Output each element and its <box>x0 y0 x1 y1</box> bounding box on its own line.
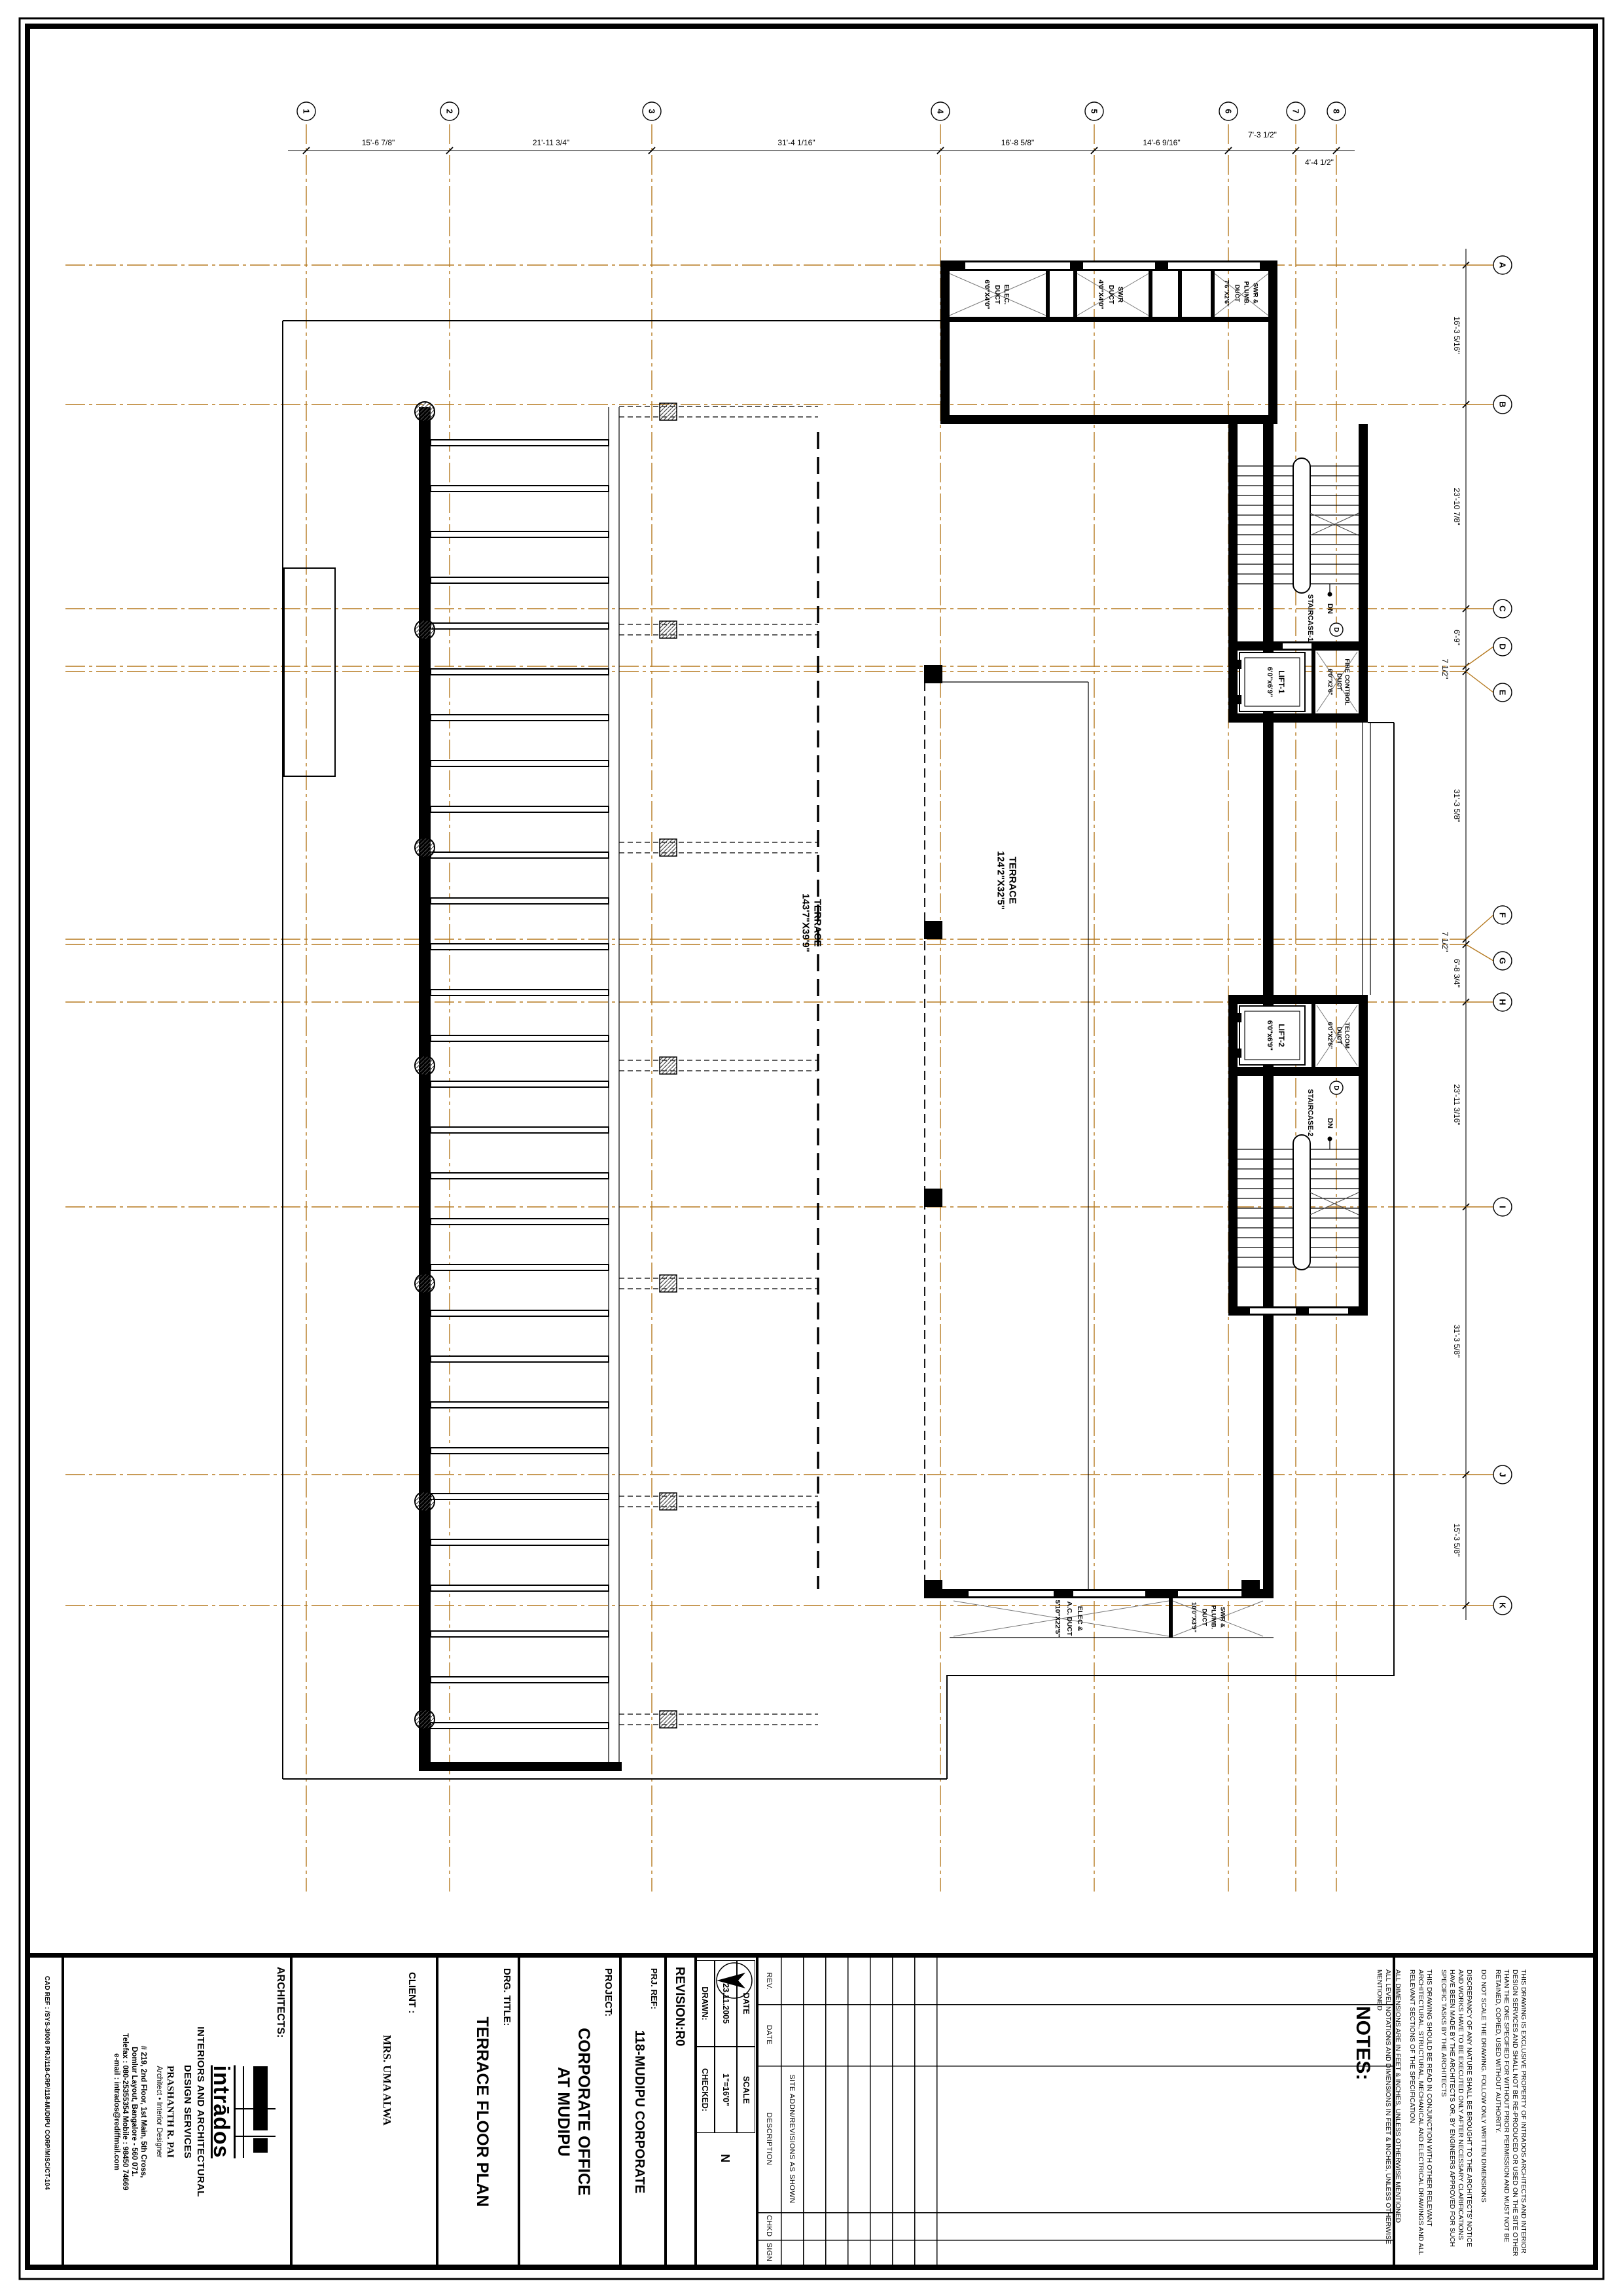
note-item: DO NOT SCALE THE DRAWING. FOLLOW ONLY WR… <box>1479 1969 1488 2258</box>
swr-plumb2-duct-label: DUCT <box>1201 1609 1208 1626</box>
scale-label: SCALE <box>737 2047 755 2133</box>
north-arrow: N <box>719 2150 732 2162</box>
grid-bubble-label: 4 <box>936 109 946 114</box>
terrace-main-size: 143'7"X39'9" <box>800 893 811 952</box>
swr-duct-label: DUCT <box>1107 285 1115 304</box>
staircase2-label: STAIRCASE-2 <box>1306 1089 1314 1137</box>
drg-title: TERRACE FLOOR PLAN <box>472 1968 492 2255</box>
note-item: DISCREPANCY OF ANY NATURE SHALL BE BROUG… <box>1439 1969 1473 2258</box>
pergola-beam <box>431 1219 609 1225</box>
architects-label: ARCHITECTS: <box>274 1967 286 2037</box>
dim-label: 7 1/2" <box>1440 932 1450 952</box>
fire-duct-label: DUCT <box>1336 673 1343 691</box>
pergola-beam <box>431 715 609 721</box>
drg-title-label: DRG. TITLE: <box>501 1968 512 2255</box>
note-item: ALL LEVEL NOTATIONS AND DIMENSIONS IN FE… <box>1375 1969 1392 2258</box>
elec-duct-label: ELEC. <box>1003 285 1010 305</box>
pergola-beam <box>431 990 609 996</box>
dim-label: 23'-10 7/8" <box>1452 488 1461 525</box>
lift2-label: LIFT-2 <box>1277 1024 1286 1047</box>
terrace-below-label: TERRACE <box>1007 857 1018 905</box>
project-line: AT MUDIPU <box>553 1968 573 2255</box>
grid-bubble-label: D <box>1498 643 1508 649</box>
pergola-beam <box>431 1310 609 1316</box>
pergola-beam <box>431 623 609 629</box>
pergola-beam <box>431 1127 609 1133</box>
grid-bubble-label: B <box>1498 401 1508 407</box>
pergola-beam <box>431 669 609 675</box>
swr-plumb2-duct-label: PLUMB. <box>1210 1605 1217 1629</box>
door-tag: D <box>1332 1085 1340 1090</box>
grid-bubble-label: G <box>1498 958 1508 964</box>
revision-cell: REVISION:R0 <box>664 1959 694 2265</box>
grid-bubble-label: 3 <box>647 109 657 113</box>
grid-bubble-label: K <box>1498 1602 1508 1609</box>
dim-label: 16'-3 5/16" <box>1452 316 1461 353</box>
pergola-beam <box>431 486 609 492</box>
rev-col-header: DESCRIPTION <box>765 2113 773 2166</box>
drawing-sheet: 15'-6 7/8" 21'-11 3/4" 31'-4 1/16" 16'-8… <box>0 0 1623 2296</box>
swr-plumb-duct-label: SWR & <box>1252 283 1259 304</box>
notes-cell: THIS DRAWING IS EXCLUSIVE PROPERTY OF IN… <box>1394 1959 1593 2265</box>
note-item: ALL DIMENSIONS ARE IN FEET & INCHES, UNL… <box>1393 1969 1402 2258</box>
address-line: # 219, 2nd Floor, 1st Main, 5th Cross, <box>138 2033 147 2190</box>
client-cell: CLIENT : MRS. UMA ALWA <box>290 1959 436 2265</box>
dn-label: DN <box>1326 1118 1334 1128</box>
architects-cell: ARCHITECTS: intrādos INTERIORS AND ARCHI… <box>63 1959 290 2265</box>
pergola-beam <box>431 531 609 537</box>
dim-label: 15'-3 5/8" <box>1452 1524 1461 1557</box>
grid-bubble-label: 8 <box>1332 109 1342 113</box>
swr-plumb2-duct-label: SWR & <box>1219 1607 1226 1628</box>
elec-duct-size: 6'0"X4'0" <box>983 279 991 309</box>
dim-label: 16'-8 5/8" <box>1001 138 1035 147</box>
elec-ac-duct-label: A.C. DUCT <box>1065 1601 1073 1636</box>
dim-label: 6'-9" <box>1452 630 1461 645</box>
dim-label: 23'-11 3/16" <box>1452 1084 1461 1125</box>
pergola-beam <box>431 1402 609 1408</box>
terrace-main-label: TERRACE <box>812 899 823 947</box>
rev-col-header: CHKD <box>765 2215 773 2236</box>
checked-label: CHECKED: <box>695 2047 715 2133</box>
pergola-beam <box>431 1448 609 1454</box>
cad-ref: CAD REF : /SYS-3/008 PRJ/118-CRP/118-MUD… <box>30 1959 63 2265</box>
grid-bubble-label: E <box>1498 690 1508 696</box>
grid-bubble-label: 2 <box>445 109 455 113</box>
project-label: PROJECT: <box>603 1968 614 2255</box>
pergola-beam <box>431 1035 609 1041</box>
plan-canvas: 15'-6 7/8" 21'-11 3/4" 31'-4 1/16" 16'-8… <box>0 0 1623 2296</box>
swr-duct-size: 4'0"X4'0" <box>1097 279 1105 309</box>
prj-ref-cell: PRJ. REF: 118-MUDIPU CORPORATE <box>619 1959 664 2265</box>
grid-bubble-label: H <box>1498 999 1508 1005</box>
square-hatched-columns <box>660 403 677 1728</box>
pergola-beam <box>431 761 609 766</box>
grid-bubble-label: C <box>1498 605 1508 612</box>
dim-label: 21'-11 3/4" <box>533 138 569 147</box>
swr-plumb-duct-size: 7'6"X2'6" <box>1223 280 1230 307</box>
scale-value: 1"=16'0" <box>715 2047 737 2133</box>
note-item: THIS DRAWING IS EXCLUSIVE PROPERTY OF IN… <box>1493 1969 1527 2258</box>
intrados-logo-icon <box>235 2066 273 2158</box>
project-name: CORPORATE OFFICE AT MUDIPU <box>553 1968 594 2255</box>
pergola-beam <box>431 1723 609 1729</box>
fire-duct-size: 6'0"X2'6" <box>1327 669 1334 696</box>
lift2-size: 6'0"x6'9" <box>1266 1020 1274 1050</box>
firm-line: DESIGN SERVICES <box>182 2065 193 2159</box>
dim-label: 31'-4 1/16" <box>777 138 815 147</box>
prj-ref: 118-MUDIPU CORPORATE <box>632 1968 647 2255</box>
up-label: UP <box>1263 1118 1271 1128</box>
prj-ref-label: PRJ. REF: <box>649 1968 659 2255</box>
rev-col-header: REV. <box>765 1973 773 1990</box>
revision-entry: SITE ADDN/REVISIONS AS SHOWN <box>788 2074 796 2203</box>
dn-label: DN <box>1326 603 1334 614</box>
dim-label: 15'-6 7/8" <box>362 138 395 147</box>
client-name: MRS. UMA ALWA <box>380 2035 393 2251</box>
pergola-spokes <box>619 406 818 1725</box>
pergola-beam <box>431 1539 609 1545</box>
elec-ac-duct-size: 5'10"X22'5" <box>1054 1600 1061 1638</box>
grid-bubble-label: 6 <box>1224 109 1234 113</box>
pergola-beam <box>431 806 609 812</box>
dim-label: 7 1/2" <box>1440 659 1450 679</box>
grid-bubble-label: 5 <box>1090 109 1099 113</box>
drg-title-cell: DRG. TITLE: TERRACE FLOOR PLAN <box>436 1959 518 2265</box>
rev-col-header: SIGN <box>765 2243 773 2262</box>
pergola-beam <box>431 1631 609 1637</box>
architects-address: # 219, 2nd Floor, 1st Main, 5th Cross, D… <box>111 2033 147 2190</box>
pergola-beam <box>431 1677 609 1683</box>
elec-duct-label: DUCT <box>993 285 1001 304</box>
pergola-beam <box>431 1081 609 1087</box>
up-label: UP <box>1263 603 1271 613</box>
grid-bubble-label: F <box>1498 912 1508 918</box>
pergola-beam <box>431 944 609 950</box>
pergola-beam <box>431 1585 609 1591</box>
fire-duct-label: FIRE CONTROL <box>1344 658 1351 705</box>
revision-table-lines <box>757 1958 1394 2265</box>
dim-label: 14'-6 9/16" <box>1143 138 1180 147</box>
notes-body: THIS DRAWING IS EXCLUSIVE PROPERTY OF IN… <box>1374 1969 1527 2258</box>
columns <box>924 665 1260 1598</box>
pergola-beam <box>431 1265 609 1270</box>
grid-bubble-label: 1 <box>302 109 312 113</box>
project-line: CORPORATE OFFICE <box>573 1968 594 2255</box>
grid-bubble-label: A <box>1498 262 1508 268</box>
elec-ac-duct-label: ELEC & <box>1076 1606 1084 1632</box>
pergola-beam <box>431 852 609 858</box>
notes-heading: NOTES: <box>1351 2006 1374 2258</box>
client-label: CLIENT : <box>406 1972 418 2251</box>
pergola-beam <box>431 577 609 583</box>
address-line: Telefax : 080-25355354 Mobile : 98450 74… <box>120 2033 130 2190</box>
dim-label: 31'-3 5/8" <box>1452 1325 1461 1358</box>
firm-line: INTERIORS AND ARCHITECTURAL <box>195 2026 206 2197</box>
terrace-lines <box>818 424 1274 1598</box>
swr-duct-label: SWR <box>1116 287 1124 303</box>
pergola-beam <box>431 1494 609 1499</box>
terrace-below-size: 124'2"X32'5" <box>995 851 1007 910</box>
top-dimension-string: 15'-6 7/8" 21'-11 3/4" 31'-4 1/16" 16'-8… <box>288 102 1355 167</box>
principal-name: PRASHANTH R. PAI <box>164 2066 175 2158</box>
address-line: e-mail : intrados@rediffmail.com <box>111 2033 120 2190</box>
dim-label: 31'-3 5/8" <box>1452 789 1461 823</box>
scale-date-cell: DATE SCALE 23.11.2005 1"=16'0" DRAWN: CH… <box>694 1959 756 2265</box>
drawn-label: DRAWN: <box>695 1960 715 2047</box>
telcom-duct-label: TELCOM <box>1344 1022 1351 1049</box>
right-dimension-string: 16'-3 5/16" 23'-10 7/8" 6'-9" 7 1/2" 31'… <box>1440 249 1512 1620</box>
pergola-beam <box>431 1356 609 1362</box>
pergola-beam <box>431 440 609 446</box>
address-line: Domlur Layout, Bangalore - 560 071. <box>129 2033 138 2190</box>
project-cell: PROJECT: CORPORATE OFFICE AT MUDIPU <box>518 1959 619 2265</box>
pergola-beam <box>431 898 609 904</box>
swr-plumb2-duct-size: 10'0"X3'9" <box>1190 1602 1198 1632</box>
grid-bubble-label: J <box>1498 1472 1508 1477</box>
dim-label: 7'-3 1/2" <box>1248 130 1277 139</box>
pergola <box>415 402 818 1771</box>
telcom-duct-size: 6'0"X2'6" <box>1327 1022 1334 1049</box>
north-label: N <box>719 2154 732 2162</box>
lift1-size: 6'0"x6'9" <box>1266 667 1274 697</box>
dim-label: 6'-8 3/4" <box>1452 959 1461 988</box>
door-tag: D <box>1332 627 1340 632</box>
lift1-label: LIFT-1 <box>1277 670 1286 694</box>
rev-col-header: DATE <box>765 2025 773 2045</box>
dim-label: 4'-4 1/2" <box>1305 158 1334 167</box>
swr-plumb-duct-label: DUCT <box>1234 285 1241 302</box>
pergola-beam <box>431 1173 609 1179</box>
grid-bubble-label: I <box>1498 1206 1508 1208</box>
principal-title: Architect • Interior Designer <box>155 2066 163 2157</box>
intrados-logo-word: intrādos <box>208 2065 234 2158</box>
telcom-duct-label: DUCT <box>1336 1027 1343 1045</box>
swr-plumb-duct-label: PLUMB. <box>1243 281 1250 305</box>
note-item: THIS DRAWING SHOULD BE READ IN CONJUNCTI… <box>1408 1969 1433 2258</box>
grid-bubble-label: 7 <box>1291 109 1301 113</box>
staircase1-label: STAIRCASE-1 <box>1306 594 1314 642</box>
